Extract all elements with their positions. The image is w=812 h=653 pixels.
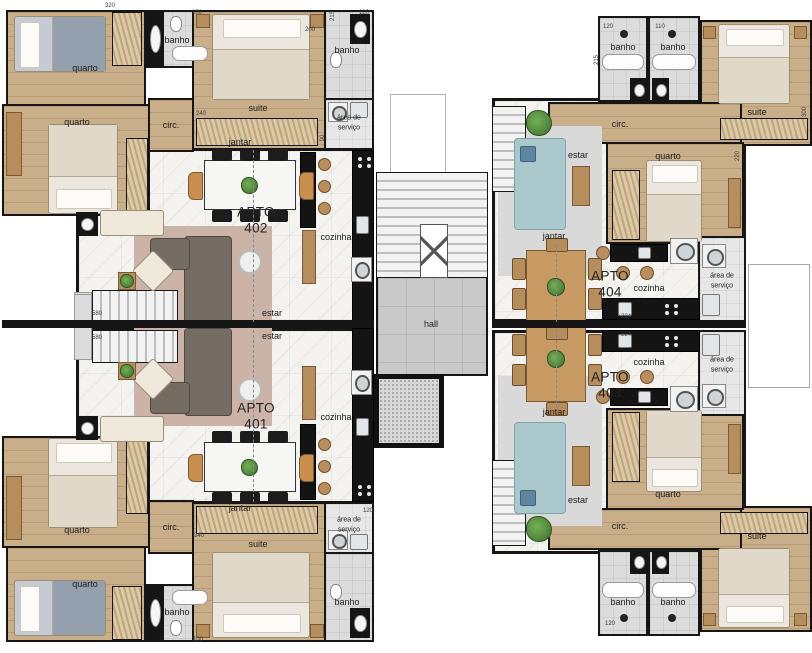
dimension: 215: [594, 55, 600, 65]
label-servico: área de: [337, 115, 361, 122]
wardrobe: [126, 138, 148, 212]
table-centerpiece: [241, 459, 258, 476]
label-cozinha: cozinha: [320, 412, 351, 422]
bench-sofa: [100, 416, 164, 442]
floor-divider-wall: [2, 320, 374, 328]
kitchen-sink: [356, 216, 369, 234]
bath-vanity: [350, 14, 370, 44]
chair: [299, 172, 314, 200]
shower-icon: [620, 614, 628, 622]
section-line: [556, 330, 557, 408]
chair: [268, 149, 288, 161]
fridge: [351, 257, 372, 282]
chair: [268, 492, 288, 504]
label-jantar: jantar: [229, 503, 252, 513]
kitchen-counter: [352, 328, 374, 502]
dimension: 100: [193, 637, 203, 643]
label-banho: banho: [334, 597, 359, 607]
bath-vanity: [146, 12, 164, 66]
chair: [512, 334, 526, 356]
stove-burners: [662, 301, 682, 317]
label-circ: circ.: [163, 120, 180, 130]
dimension: 240: [196, 111, 206, 117]
wardrobe: [196, 118, 318, 146]
stool: [318, 180, 331, 193]
bed: [646, 160, 702, 242]
label-banho: banho: [164, 607, 189, 617]
wardrobe: [126, 440, 148, 514]
dimension: 224: [621, 314, 631, 320]
bed: [212, 14, 310, 100]
dimension: 220: [735, 151, 741, 161]
plant: [120, 274, 134, 288]
dresser: [728, 424, 741, 474]
label-suite: suite: [747, 107, 766, 117]
bench: [572, 166, 590, 206]
bed: [212, 552, 310, 638]
plant: [526, 110, 552, 136]
laundry-sink: [702, 334, 720, 356]
label-circ: circ.: [163, 522, 180, 532]
side-table: [76, 416, 98, 440]
plant: [526, 516, 552, 542]
stool: [318, 438, 331, 451]
label-cozinha: cozinha: [320, 232, 351, 242]
bathtub: [602, 582, 644, 598]
bathtub: [602, 54, 644, 70]
label-apto-number: 403: [598, 386, 621, 401]
stool: [318, 460, 331, 473]
chair: [299, 454, 314, 482]
nightstand: [310, 14, 324, 28]
label-apto-number: 404: [598, 285, 621, 300]
chair: [512, 364, 526, 386]
stool: [318, 202, 331, 215]
label-servico: serviço: [711, 367, 733, 374]
kitchen-cabinet: [302, 366, 316, 420]
label-hall: hall: [424, 319, 438, 329]
washing-machine: [702, 384, 726, 408]
stool: [318, 158, 331, 171]
label-estar: estar: [568, 495, 588, 505]
dimension: 200: [305, 27, 315, 33]
label-banho: banho: [164, 35, 189, 45]
nightstand: [196, 14, 210, 28]
nightstand: [196, 624, 210, 638]
bath-vanity: [630, 550, 647, 574]
kitchen-counter: [352, 150, 374, 324]
shower-icon: [668, 30, 676, 38]
chair: [268, 431, 288, 443]
chair: [188, 454, 203, 482]
label-quarto: quarto: [655, 151, 681, 161]
bed: [718, 548, 790, 628]
label-cozinha: cozinha: [633, 283, 664, 293]
label-servico: área de: [710, 357, 734, 364]
label-quarto: quarto: [72, 579, 98, 589]
dimension: 320: [105, 3, 115, 9]
label-estar: estar: [568, 150, 588, 160]
label-servico: área de: [337, 517, 361, 524]
stool: [596, 246, 610, 260]
dimension: 120: [605, 621, 615, 627]
bed: [48, 438, 118, 528]
kitchen-counter: [602, 298, 700, 320]
table-centerpiece: [241, 177, 258, 194]
wardrobe: [720, 118, 808, 140]
dimension: 300: [802, 107, 808, 117]
label-apto: APTO: [591, 269, 629, 284]
chair: [512, 258, 526, 280]
dimension: 110: [655, 24, 665, 30]
label-quarto: quarto: [655, 489, 681, 499]
label-estar: estar: [262, 331, 282, 341]
label-banho: banho: [334, 45, 359, 55]
label-circ: circ.: [612, 521, 629, 531]
laundry-sink: [350, 534, 368, 550]
bath-vanity: [350, 608, 370, 638]
dimension: 340: [194, 533, 204, 539]
duplex-stairs: [92, 330, 178, 363]
stool: [318, 482, 331, 495]
wardrobe: [196, 506, 318, 534]
duct-shaft: [390, 94, 446, 174]
label-banho: banho: [660, 42, 685, 52]
bath-vanity: [652, 550, 669, 574]
nightstand: [703, 613, 716, 626]
desk: [6, 112, 22, 176]
fridge: [670, 386, 698, 412]
shower-icon: [668, 614, 676, 622]
bath-vanity: [652, 78, 669, 102]
plant: [120, 364, 134, 378]
label-banho: banho: [610, 42, 635, 52]
chair: [240, 149, 260, 161]
bath-vanity: [630, 78, 647, 102]
kitchen-sink: [638, 391, 651, 403]
toilet: [170, 16, 182, 32]
dimension: 580: [92, 311, 102, 317]
dimension: 215: [330, 11, 336, 21]
label-apto: APTO: [237, 401, 275, 416]
label-suite: suite: [248, 103, 267, 113]
label-servico: serviço: [711, 283, 733, 290]
chair: [588, 334, 602, 356]
washing-machine: [702, 244, 726, 268]
nightstand: [794, 613, 807, 626]
floor-divider-wall: [492, 320, 746, 328]
label-apto-number: 402: [244, 221, 267, 236]
section-line: [253, 150, 254, 322]
label-apto-number: 401: [244, 417, 267, 432]
desk: [6, 476, 22, 540]
chair: [212, 210, 232, 222]
dimension: 120: [363, 508, 373, 514]
dimension: 120: [603, 24, 613, 30]
bathtub: [172, 590, 208, 605]
bench-sofa: [100, 210, 164, 236]
bed: [48, 124, 118, 214]
dimension: 580: [92, 335, 102, 341]
dimension: 100: [192, 10, 202, 16]
dimension: 120: [359, 10, 369, 16]
label-quarto: quarto: [64, 525, 90, 535]
bath-vanity: [146, 586, 164, 640]
coffee-table: [238, 378, 262, 402]
toilet: [170, 620, 182, 636]
nightstand: [310, 624, 324, 638]
kitchen-sink: [356, 418, 369, 436]
kitchen-sink: [638, 247, 651, 259]
service-balcony: [748, 264, 810, 388]
nightstand: [703, 26, 716, 39]
stool: [640, 266, 654, 280]
chair: [240, 431, 260, 443]
label-servico: serviço: [338, 125, 360, 132]
chair: [212, 431, 232, 443]
nightstand: [794, 26, 807, 39]
label-quarto: quarto: [72, 63, 98, 73]
label-suite: suite: [747, 531, 766, 541]
stove-burners: [355, 154, 373, 170]
side-table: [76, 212, 98, 236]
label-jantar: jantar: [229, 137, 252, 147]
sofa-pillow: [520, 490, 536, 506]
duplex-stairs: [92, 290, 178, 323]
label-servico: área de: [710, 273, 734, 280]
fridge: [351, 370, 372, 395]
bathtub: [652, 582, 696, 598]
chair: [212, 149, 232, 161]
bench: [572, 446, 590, 486]
sofa-pillow: [520, 146, 536, 162]
label-banho: banho: [610, 597, 635, 607]
wardrobe: [612, 170, 640, 240]
coffee-table: [238, 250, 262, 274]
label-suite: suite: [248, 539, 267, 549]
chair: [546, 326, 568, 340]
elevator: [374, 374, 444, 448]
floor-plan: quarto banho quarto circ. suite banho ár…: [0, 0, 812, 653]
dimension: 224: [621, 332, 631, 338]
shower-icon: [620, 30, 628, 38]
laundry-sink: [702, 294, 720, 316]
wardrobe: [112, 586, 142, 640]
label-servico: serviço: [338, 527, 360, 534]
fridge: [670, 238, 698, 264]
stool: [640, 370, 654, 384]
chair: [188, 172, 203, 200]
kitchen-counter: [602, 330, 700, 352]
stove-burners: [662, 333, 682, 349]
stair-landing-x: [420, 224, 448, 278]
label-banho: banho: [660, 597, 685, 607]
bathtub: [652, 54, 696, 70]
label-cozinha: cozinha: [633, 357, 664, 367]
chair: [512, 288, 526, 310]
label-quarto: quarto: [64, 117, 90, 127]
label-jantar: jantar: [543, 231, 566, 241]
dresser: [728, 178, 741, 228]
sofa: [184, 328, 232, 416]
label-apto: APTO: [591, 370, 629, 385]
label-circ: circ.: [612, 119, 629, 129]
dimension: 90: [320, 135, 326, 142]
stove-burners: [355, 482, 373, 498]
bathtub: [172, 46, 208, 61]
bed: [718, 24, 790, 104]
sofa: [184, 236, 232, 324]
section-line: [556, 244, 557, 322]
label-apto: APTO: [237, 205, 275, 220]
kitchen-cabinet: [302, 230, 316, 284]
label-jantar: jantar: [543, 407, 566, 417]
wardrobe: [612, 412, 640, 482]
wardrobe: [112, 12, 142, 66]
bed: [646, 410, 702, 492]
label-estar: estar: [262, 308, 282, 318]
